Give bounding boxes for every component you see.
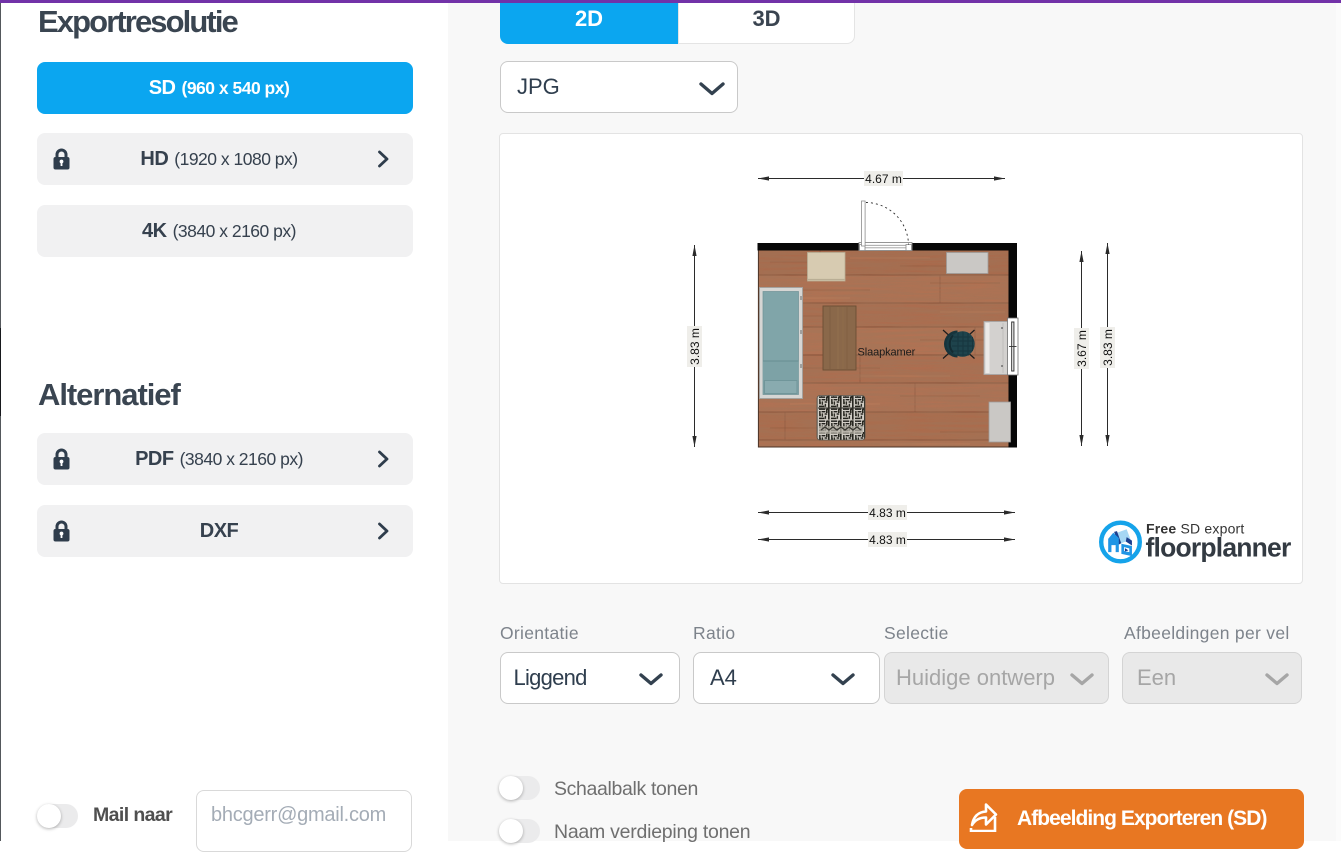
svg-text:3.83 m: 3.83 m (688, 328, 702, 365)
svg-text:3.83 m: 3.83 m (1101, 329, 1115, 366)
svg-text:4.67 m: 4.67 m (865, 172, 902, 186)
svg-text:Slaapkamer: Slaapkamer (858, 347, 916, 359)
svg-text:3.67 m: 3.67 m (1075, 330, 1089, 367)
svg-text:floorplanner: floorplanner (1146, 533, 1291, 563)
svg-text:4.83 m: 4.83 m (869, 533, 906, 547)
svg-text:4.83 m: 4.83 m (869, 506, 906, 520)
